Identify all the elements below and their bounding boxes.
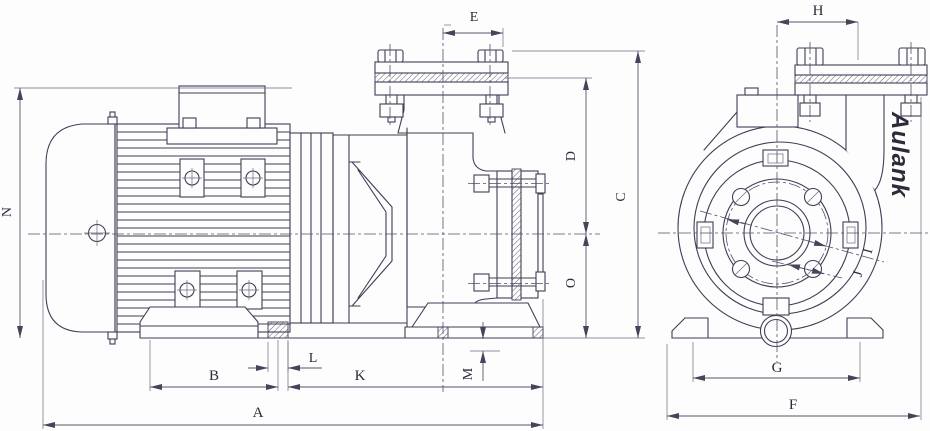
dim-label-d: D [564, 151, 579, 161]
pump-foot [405, 303, 543, 338]
dim-B: B [150, 368, 278, 387]
dim-E: E [443, 10, 503, 33]
dim-label-n: N [0, 207, 15, 217]
dim-label-l: L [309, 351, 318, 366]
dim-K: K [288, 368, 543, 387]
dim-label-o: O [564, 278, 579, 288]
dim-label-e: E [470, 10, 479, 25]
dim-H: H [777, 3, 858, 22]
discharge-flange-side [375, 50, 508, 122]
dim-label-f: F [789, 397, 797, 413]
dim-label-c: C [614, 192, 629, 201]
dim-label-m: M [461, 367, 476, 380]
dim-label-h: H [813, 3, 824, 19]
dim-label-k: K [355, 368, 366, 384]
fan-cover [46, 112, 117, 344]
side-view [46, 50, 645, 344]
brand-logo: Aulank [886, 111, 913, 199]
pump-dimension-drawing: Aulank N E [0, 0, 930, 431]
dim-A: A [43, 405, 543, 425]
gasket-hatch [795, 75, 927, 83]
gasket-hatch-vertical [512, 169, 521, 300]
dim-O: O [564, 234, 586, 338]
dim-F: F [667, 397, 920, 416]
dim-L: L [248, 351, 322, 368]
dim-N: N [0, 88, 20, 338]
dim-G: G [693, 360, 860, 378]
motor-end-rings [290, 133, 333, 323]
front-view: Aulank [672, 48, 927, 347]
gasket-hatch [375, 73, 508, 82]
dim-label-a: A [253, 405, 264, 421]
bracket-support-foot [268, 322, 288, 338]
drain-boss [761, 316, 792, 347]
dim-D: D [564, 78, 586, 234]
drawing-canvas: Aulank N E [0, 0, 930, 431]
dim-label-g: G [772, 360, 783, 376]
motor-foot [140, 307, 258, 338]
terminal-box [167, 86, 277, 144]
bearing-bracket [333, 128, 407, 330]
dim-C: C [614, 51, 638, 338]
dim-label-b: B [209, 368, 219, 384]
suction-flange-side [474, 169, 545, 300]
